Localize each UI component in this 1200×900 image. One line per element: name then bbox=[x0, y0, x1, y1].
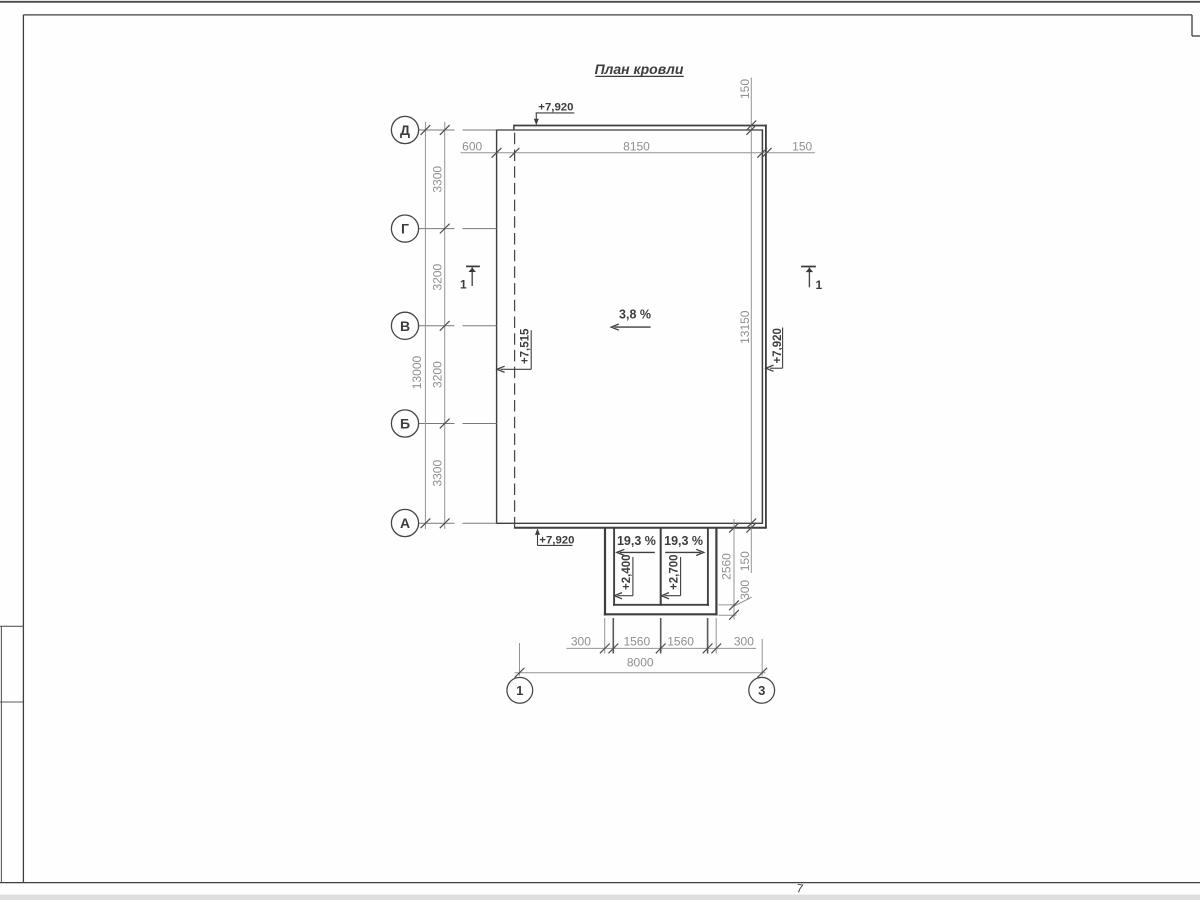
svg-text:1: 1 bbox=[516, 683, 523, 698]
svg-text:8150: 8150 bbox=[623, 139, 650, 153]
svg-text:3200: 3200 bbox=[431, 264, 445, 291]
svg-text:1560: 1560 bbox=[667, 635, 694, 649]
svg-text:150: 150 bbox=[738, 79, 752, 99]
svg-text:3: 3 bbox=[758, 683, 765, 698]
svg-text:1: 1 bbox=[460, 277, 467, 291]
svg-text:3300: 3300 bbox=[431, 460, 445, 487]
svg-text:3,8 %: 3,8 % bbox=[619, 307, 651, 321]
svg-text:+2,700: +2,700 bbox=[669, 554, 681, 590]
svg-text:В: В bbox=[400, 318, 410, 334]
svg-text:А: А bbox=[400, 515, 410, 531]
svg-text:+7,920: +7,920 bbox=[539, 535, 574, 547]
svg-text:1: 1 bbox=[816, 278, 823, 292]
svg-text:150: 150 bbox=[792, 139, 812, 153]
svg-text:19,3 %: 19,3 % bbox=[664, 534, 703, 548]
svg-text:300: 300 bbox=[571, 635, 591, 649]
svg-text:План кровли: План кровли bbox=[595, 61, 684, 77]
svg-text:19,3 %: 19,3 % bbox=[617, 534, 656, 548]
svg-text:150: 150 bbox=[738, 551, 752, 571]
svg-text:1560: 1560 bbox=[623, 635, 650, 649]
svg-text:Г: Г bbox=[401, 221, 409, 237]
svg-text:Б: Б bbox=[400, 416, 410, 432]
svg-text:300: 300 bbox=[734, 635, 754, 649]
svg-text:300: 300 bbox=[738, 580, 752, 600]
svg-text:+7,920: +7,920 bbox=[538, 102, 573, 114]
svg-text:+7,515: +7,515 bbox=[519, 328, 531, 364]
svg-text:2560: 2560 bbox=[719, 553, 733, 580]
svg-text:3200: 3200 bbox=[431, 361, 445, 388]
svg-text:Д: Д bbox=[400, 122, 410, 138]
svg-text:+2,400: +2,400 bbox=[621, 554, 633, 590]
svg-text:13000: 13000 bbox=[410, 355, 424, 389]
svg-text:13150: 13150 bbox=[738, 310, 752, 344]
svg-text:600: 600 bbox=[462, 139, 482, 153]
svg-text:8000: 8000 bbox=[627, 656, 654, 670]
svg-text:3300: 3300 bbox=[431, 166, 445, 193]
